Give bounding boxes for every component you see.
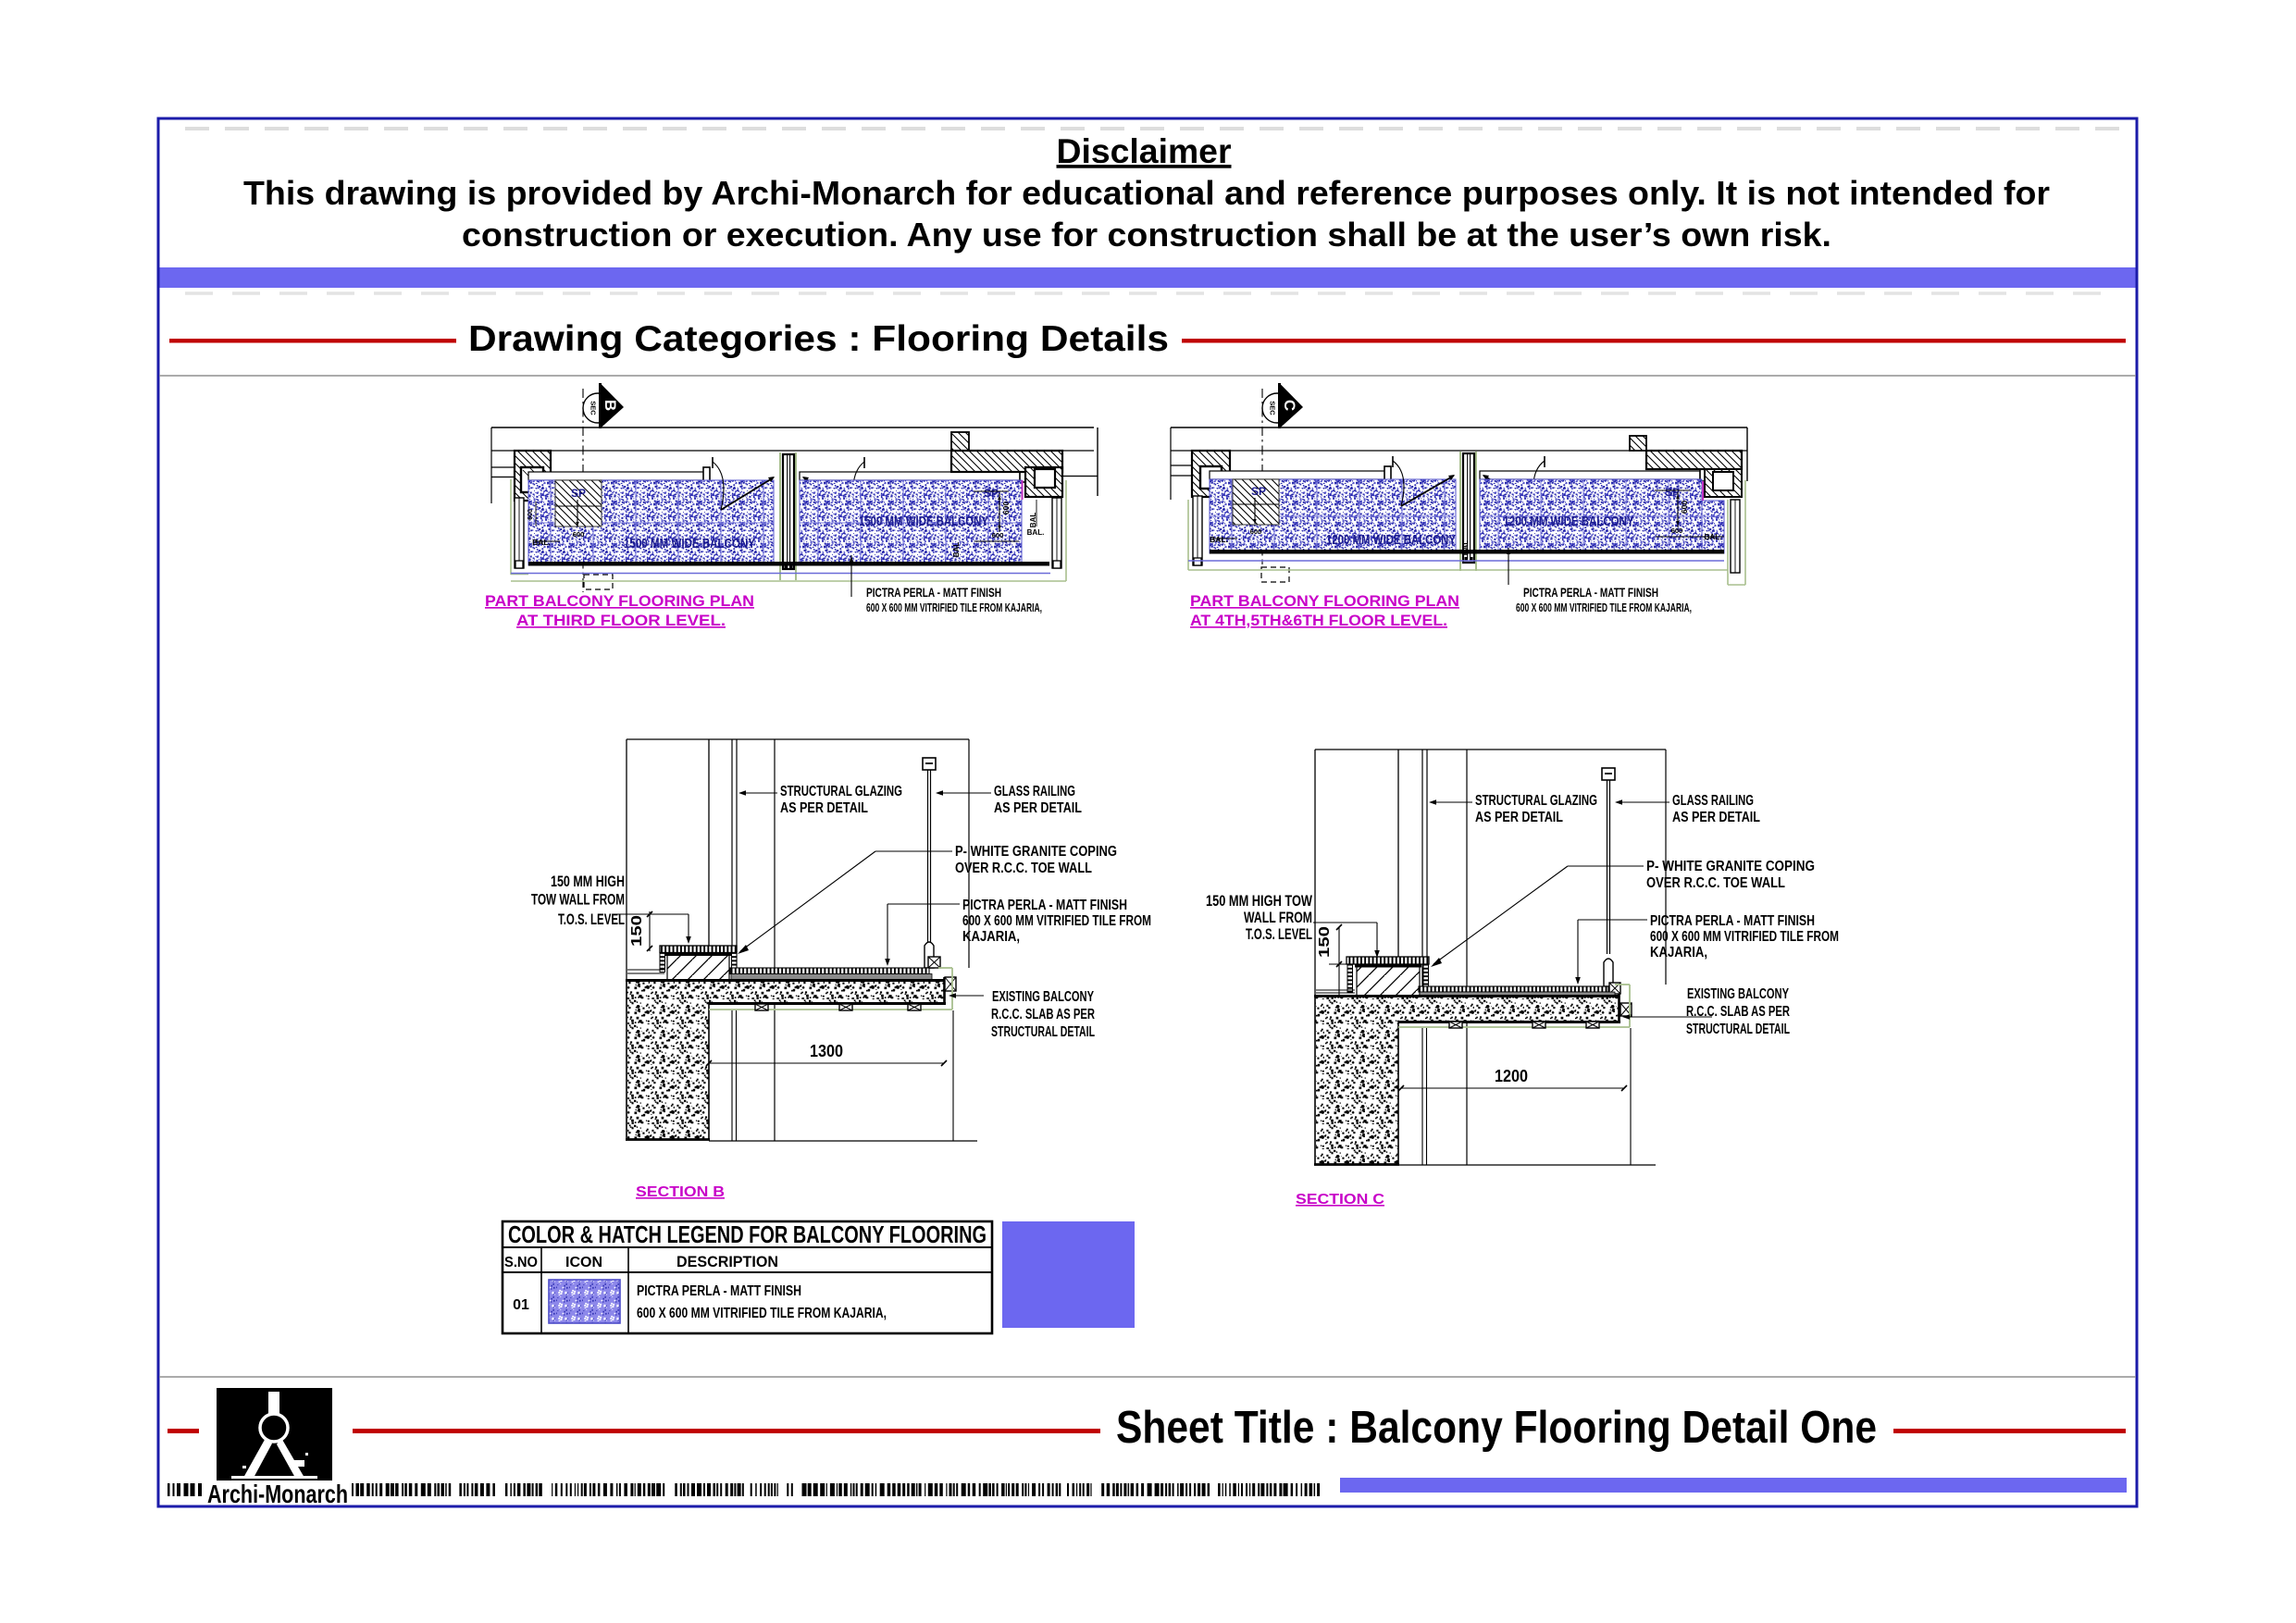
svg-text:C: C [1281,400,1298,411]
svg-text:DESCRIPTION: DESCRIPTION [676,1253,778,1270]
svg-text:EXISTING BALCONY: EXISTING BALCONY [1687,986,1789,1002]
svg-text:AT 4TH,5TH&6TH FLOOR LEVEL.: AT 4TH,5TH&6TH FLOOR LEVEL. [1190,613,1447,629]
svg-text:AT THIRD FLOOR LEVEL.: AT THIRD FLOOR LEVEL. [516,613,726,629]
svg-text:600: 600 [573,530,585,539]
svg-text:OVER R.C.C. TOE WALL: OVER R.C.C. TOE WALL [1646,875,1785,891]
svg-text:1300: 1300 [810,1042,843,1060]
svg-text:P- WHITE GRANITE COPING: P- WHITE GRANITE COPING [1646,859,1815,874]
svg-text:150: 150 [1317,926,1333,958]
svg-text:STRUCTURAL GLAZING: STRUCTURAL GLAZING [1475,793,1597,809]
svg-text:ICON: ICON [565,1255,602,1270]
svg-text:SEC: SEC [1269,401,1277,415]
svg-text:150 MM HIGH TOW: 150 MM HIGH TOW [1206,892,1313,910]
svg-text:construction or execution. Any: construction or execution. Any use for c… [462,216,1831,254]
svg-text:600 X 600 MM VITRIFIED TILE FR: 600 X 600 MM VITRIFIED TILE FROM KAJARIA… [866,601,1042,614]
svg-text:T.O.S. LEVEL: T.O.S. LEVEL [1246,925,1312,943]
svg-text:1500 MM WIDE BALCONY: 1500 MM WIDE BALCONY [859,514,988,529]
svg-text:600: 600 [1250,527,1262,536]
svg-text:SECTION C: SECTION C [1296,1192,1384,1208]
svg-text:STRUCTURAL GLAZING: STRUCTURAL GLAZING [780,784,902,799]
svg-text:1200: 1200 [1495,1067,1528,1085]
svg-text:600 X 600 MM VITRIFIED TILE FR: 600 X 600 MM VITRIFIED TILE FROM [1650,929,1839,945]
svg-text:B: B [602,400,619,411]
svg-text:600: 600 [1671,527,1683,535]
svg-text:150 MM HIGH: 150 MM HIGH [551,873,625,890]
svg-text:SP: SP [984,487,999,500]
svg-text:600 X 600 MM VITRIFIED TILE FR: 600 X 600 MM VITRIFIED TILE FROM KAJARIA… [1516,601,1692,614]
svg-text:Drawing Categories : Flooring: Drawing Categories : Flooring Details [468,319,1169,359]
svg-text:PART BALCONY FLOORING PLAN: PART BALCONY FLOORING PLAN [1190,593,1459,610]
svg-text:600: 600 [527,509,534,520]
svg-text:600: 600 [1680,501,1689,514]
svg-text:PICTRA PERLA - MATT FINISH: PICTRA PERLA - MATT FINISH [1650,913,1815,929]
svg-text:STRUCTURAL DETAIL: STRUCTURAL DETAIL [991,1024,1095,1040]
svg-text:COLOR & HATCH LEGEND FOR BALCO: COLOR & HATCH LEGEND FOR BALCONY FLOORIN… [508,1220,987,1248]
svg-text:600: 600 [1001,502,1011,514]
svg-text:GLASS RAILING: GLASS RAILING [1672,793,1754,809]
svg-text:PART BALCONY FLOORING PLAN: PART BALCONY FLOORING PLAN [485,593,754,610]
svg-text:WALL FROM: WALL FROM [1244,909,1312,926]
svg-text:BAL: BAL [952,542,961,558]
svg-text:PICTRA PERLA - MATT FINISH: PICTRA PERLA - MATT FINISH [637,1283,801,1299]
svg-text:BAL.: BAL. [1027,528,1045,537]
svg-text:KAJARIA,: KAJARIA, [962,929,1020,945]
svg-text:S.NO: S.NO [504,1255,538,1270]
svg-text:SECTION B: SECTION B [636,1184,725,1200]
svg-text:AS PER DETAIL: AS PER DETAIL [780,800,868,816]
svg-text:This drawing is provided by Ar: This drawing is provided by Archi-Monarc… [243,174,2050,212]
svg-text:TOW WALL FROM: TOW WALL FROM [531,891,625,909]
svg-text:OVER R.C.C. TOE WALL: OVER R.C.C. TOE WALL [955,861,1092,876]
svg-text:BAL.: BAL. [1210,535,1228,544]
svg-text:AS PER DETAIL: AS PER DETAIL [1672,810,1760,825]
svg-text:AS PER DETAIL: AS PER DETAIL [1475,810,1563,825]
svg-text:STRUCTURAL DETAIL: STRUCTURAL DETAIL [1686,1022,1790,1037]
svg-text:KAJARIA,: KAJARIA, [1650,945,1707,960]
svg-text:BAL.: BAL. [1705,533,1722,541]
svg-text:EXISTING BALCONY: EXISTING BALCONY [992,989,1094,1005]
svg-text:BAL.: BAL. [532,538,551,547]
svg-text:SP: SP [571,487,586,500]
svg-text:600 X 600 MM VITRIFIED TILE FR: 600 X 600 MM VITRIFIED TILE FROM KAJARIA… [637,1306,887,1321]
svg-text:PICTRA PERLA - MATT FINISH: PICTRA PERLA - MATT FINISH [866,585,1001,600]
svg-text:1500 MM WIDE BALCONY: 1500 MM WIDE BALCONY [624,536,755,551]
svg-text:T.O.S. LEVEL: T.O.S. LEVEL [558,911,625,928]
svg-text:600: 600 [992,531,1004,539]
svg-text:PICTRA PERLA - MATT FINISH: PICTRA PERLA - MATT FINISH [1523,585,1658,600]
svg-text:SEC: SEC [590,401,598,415]
svg-text:150: 150 [629,915,645,947]
svg-text:GLASS RAILING: GLASS RAILING [994,784,1075,799]
svg-text:R.C.C. SLAB AS PER: R.C.C. SLAB AS PER [991,1007,1095,1022]
svg-text:Archi-Monarch: Archi-Monarch [207,1480,348,1508]
svg-text:1200 MM WIDE BALCONY: 1200 MM WIDE BALCONY [1326,532,1456,548]
svg-text:600 X 600 MM VITRIFIED TILE FR: 600 X 600 MM VITRIFIED TILE FROM [962,913,1151,929]
svg-text:SP: SP [1251,485,1266,498]
svg-text:Disclaimer: Disclaimer [1057,132,1232,170]
svg-text:Sheet Title : Balcony Flooring: Sheet Title : Balcony Flooring Detail On… [1116,1403,1877,1453]
svg-text:1200 MM WIDE BALCONY: 1200 MM WIDE BALCONY [1504,514,1634,529]
svg-text:AS PER DETAIL: AS PER DETAIL [994,800,1082,816]
svg-text:P- WHITE GRANITE COPING: P- WHITE GRANITE COPING [955,844,1117,860]
svg-text:01: 01 [513,1297,529,1313]
svg-text:PICTRA PERLA - MATT FINISH: PICTRA PERLA - MATT FINISH [962,898,1127,913]
